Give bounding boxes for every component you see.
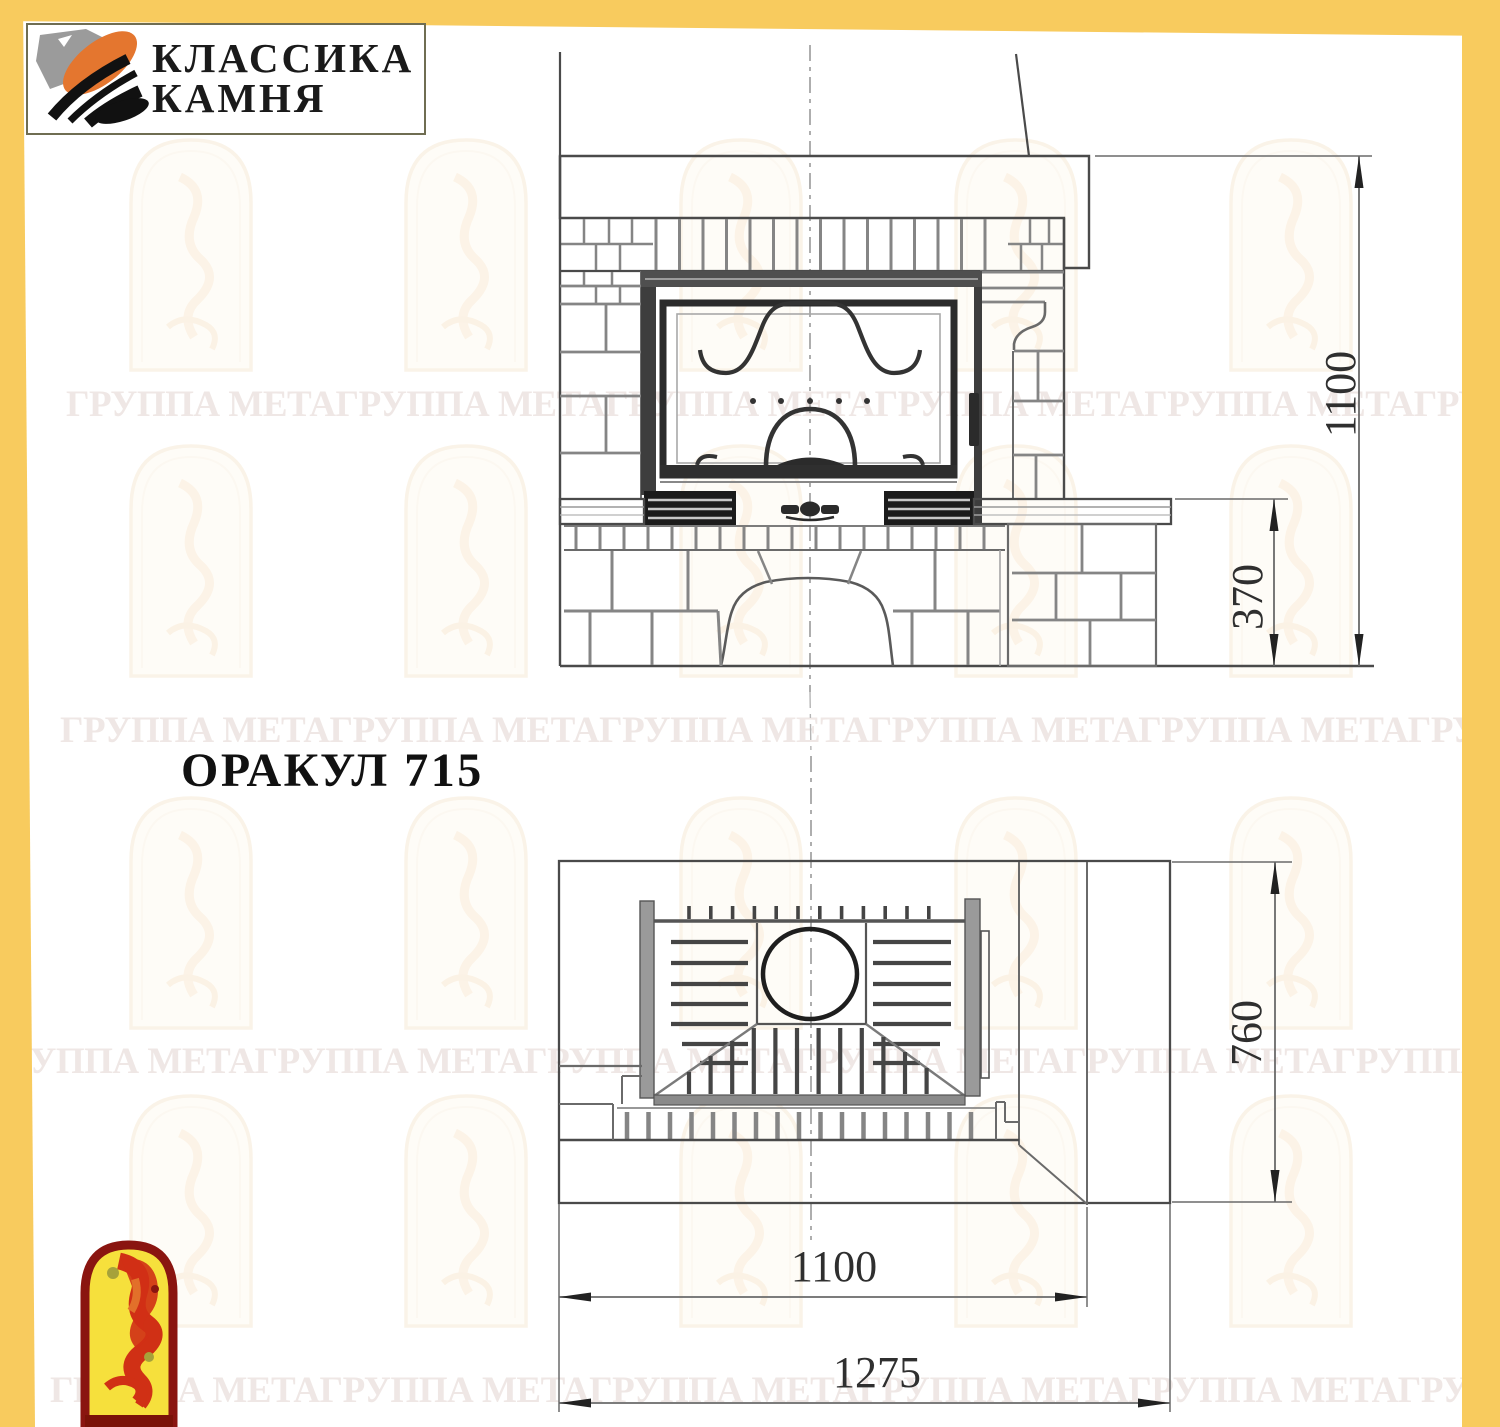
svg-text:760: 760 bbox=[1222, 1000, 1271, 1066]
svg-text:1275: 1275 bbox=[833, 1348, 921, 1397]
svg-text:1100: 1100 bbox=[791, 1242, 877, 1291]
svg-text:КАМНЯ: КАМНЯ bbox=[152, 75, 327, 121]
svg-text:370: 370 bbox=[1223, 564, 1272, 630]
svg-text:1100: 1100 bbox=[1316, 351, 1365, 437]
